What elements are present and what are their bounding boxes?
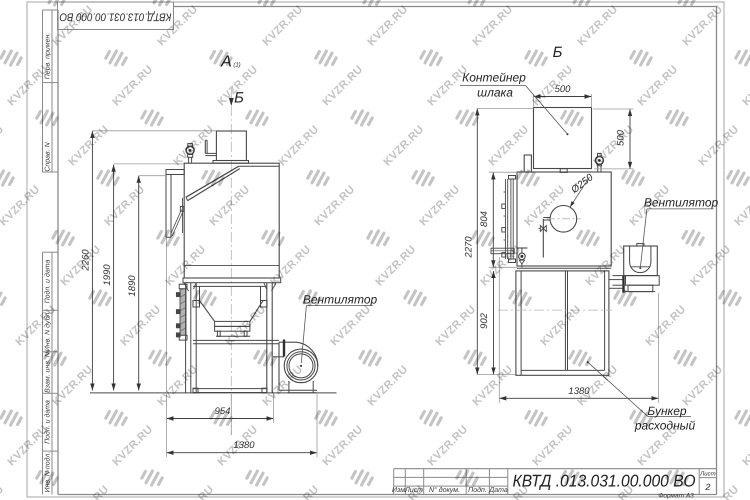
svg-text:Бункер: Бункер xyxy=(647,404,686,418)
svg-text:N° докум.: N° докум. xyxy=(429,486,460,494)
svg-text:шлака: шлака xyxy=(477,86,513,100)
svg-text:Дата: Дата xyxy=(488,487,508,494)
svg-text:Подп.: Подп. xyxy=(468,486,487,494)
svg-text:Формат А3: Формат А3 xyxy=(658,493,694,500)
svg-text:Подп. и дата: Подп. и дата xyxy=(44,259,52,303)
svg-text:(1): (1) xyxy=(233,62,240,69)
svg-text:Б: Б xyxy=(553,44,563,61)
svg-text:1890: 1890 xyxy=(127,275,138,297)
svg-text:902: 902 xyxy=(479,312,490,329)
svg-text:804: 804 xyxy=(479,211,490,227)
svg-text:1990: 1990 xyxy=(102,264,113,286)
svg-text:Справ. N: Справ. N xyxy=(45,141,52,171)
svg-text:Лист: Лист xyxy=(699,471,715,478)
svg-text:Контейнер: Контейнер xyxy=(462,71,526,85)
svg-text:2: 2 xyxy=(704,482,710,492)
